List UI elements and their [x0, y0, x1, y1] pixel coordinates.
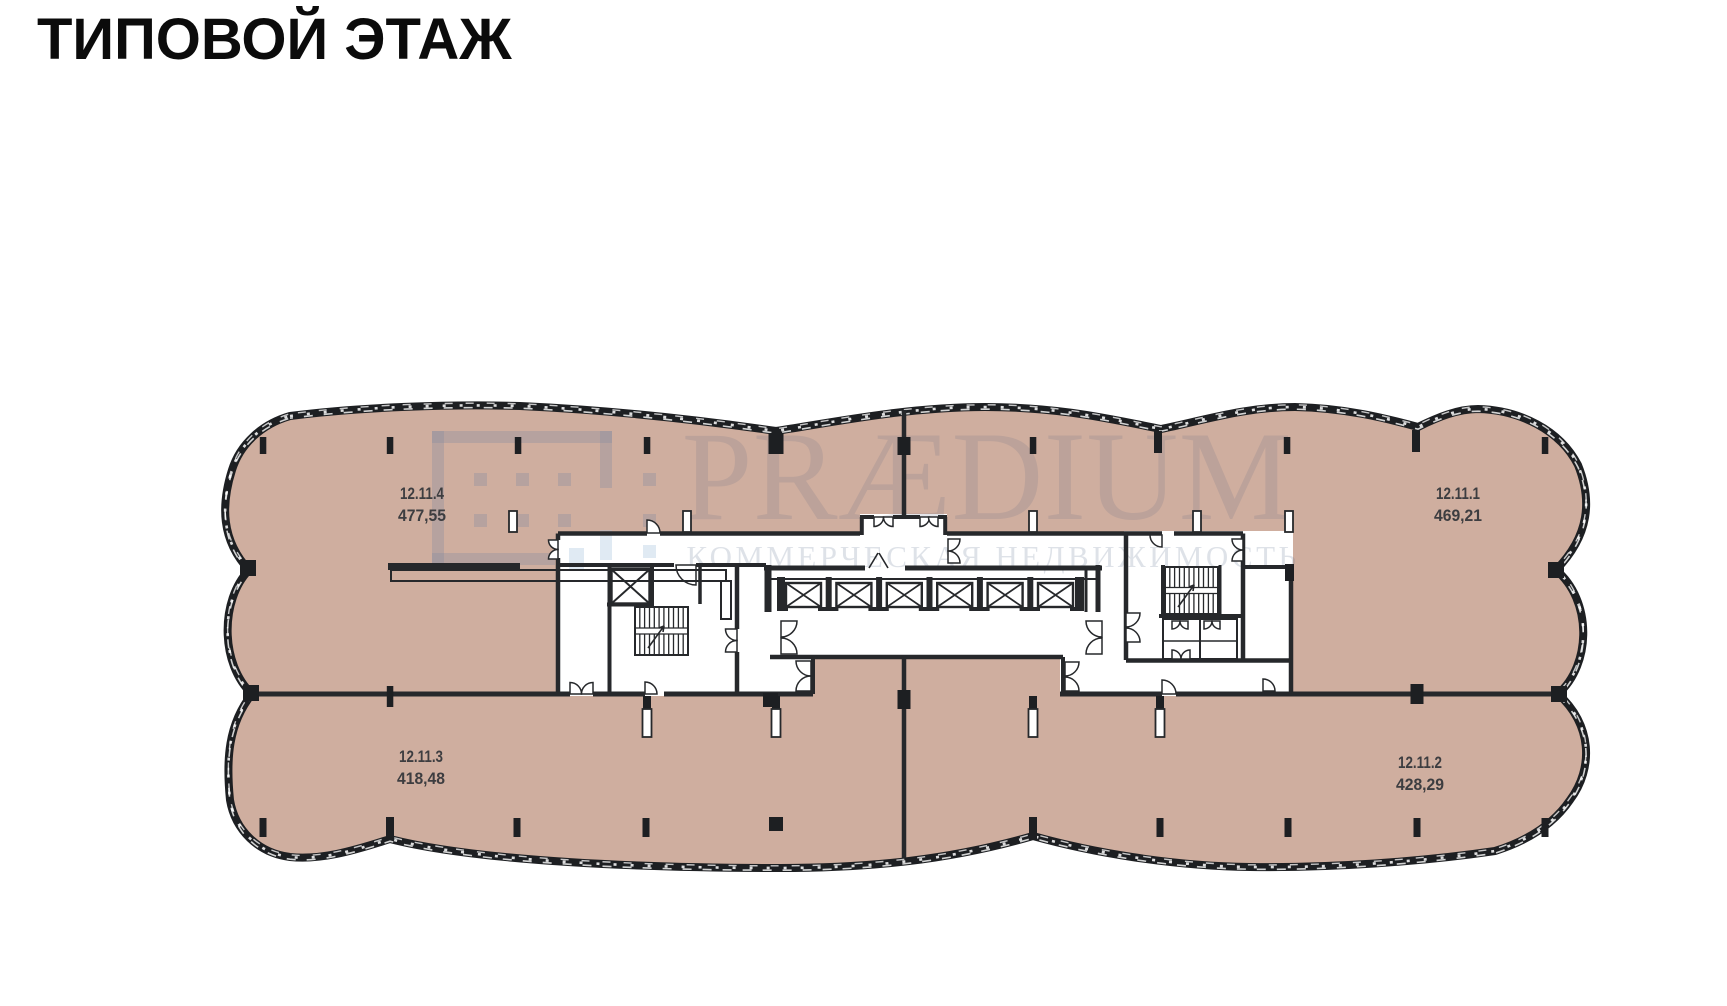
svg-text:12.11.2: 12.11.2: [1398, 753, 1442, 772]
svg-text:418,48: 418,48: [397, 769, 445, 788]
svg-text:12.11.4: 12.11.4: [400, 484, 444, 503]
svg-text:469,21: 469,21: [1434, 506, 1482, 525]
svg-text:428,29: 428,29: [1396, 775, 1444, 794]
svg-text:477,55: 477,55: [398, 506, 446, 525]
svg-text:12.11.1: 12.11.1: [1436, 484, 1480, 503]
svg-text:12.11.3: 12.11.3: [399, 747, 443, 766]
